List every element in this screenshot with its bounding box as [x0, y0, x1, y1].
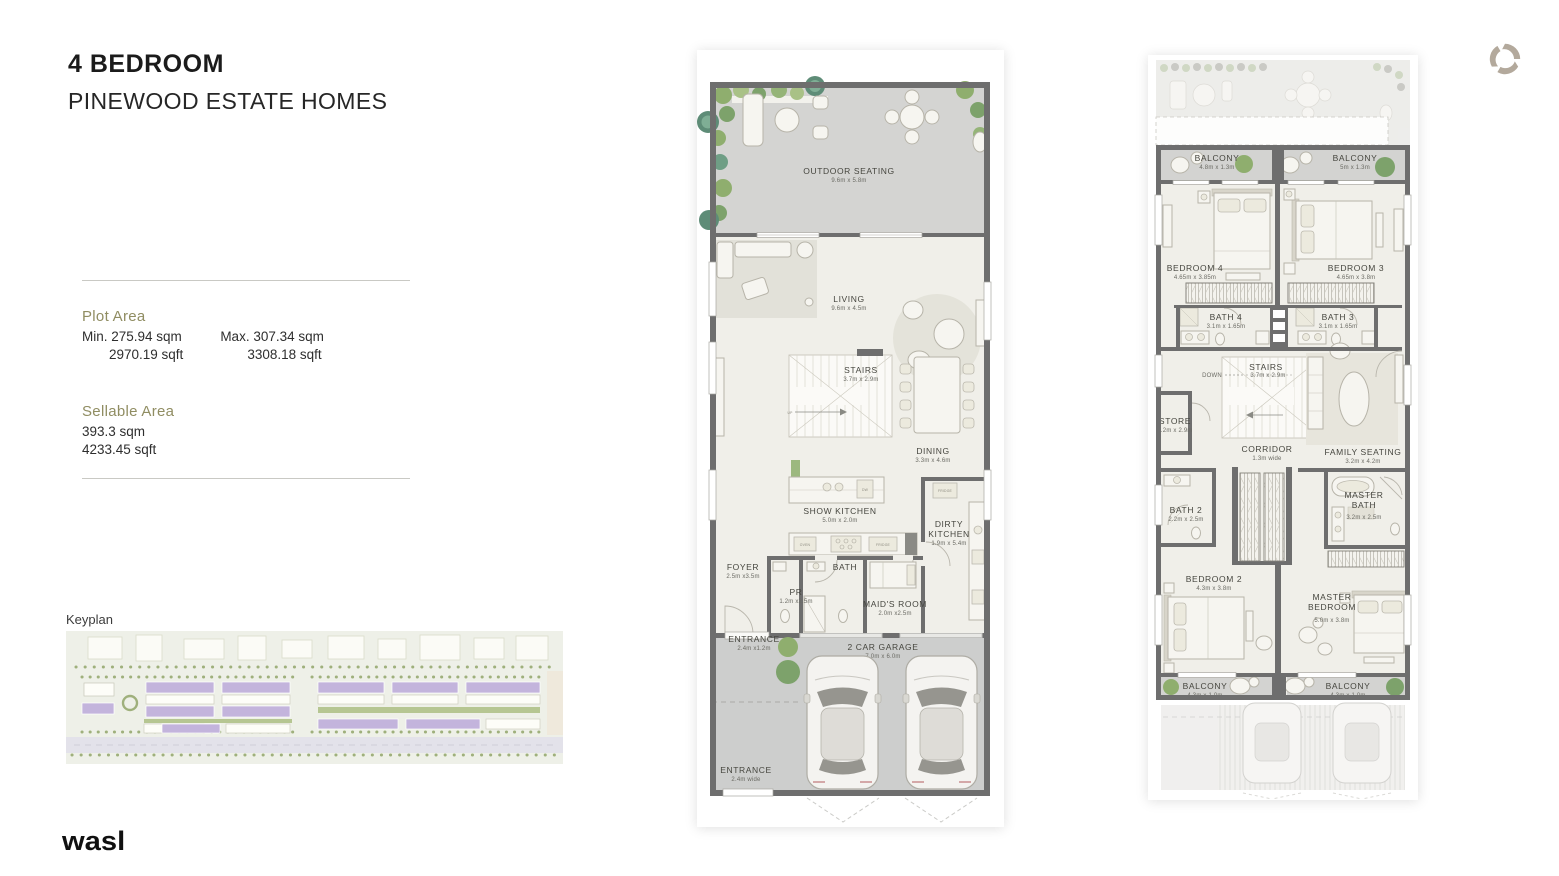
room-label-store: STORE 1.2m x 2.9m — [1157, 416, 1192, 434]
room-name: BATH 2 — [1170, 505, 1203, 515]
room-label-balcony-4: BALCONY 4.8m x 1.3m — [1195, 153, 1240, 171]
room-label-living: LIVING 9.6m x 4.5m — [831, 294, 866, 312]
car-icon — [903, 656, 980, 789]
plot-area-min: Min. 275.94 sqm 2970.19 sqft — [82, 328, 183, 364]
stairs-ground: UP — [787, 349, 892, 437]
room-dims: 2.4m x1.2m — [737, 646, 770, 652]
room-name: BALCONY — [1183, 681, 1228, 691]
room-name: MAID'S ROOM — [863, 599, 927, 609]
room-label-foyer: FOYER 2.5m x3.5m — [726, 562, 759, 580]
down-label: DOWN — [1202, 373, 1222, 379]
master-closet-strip — [1328, 551, 1404, 567]
ground-floor-plan: OUTDOOR SEATING 9.6m x 5.8m LIVING 9.6m … — [697, 50, 1004, 827]
room-name: SHOW KITCHEN — [803, 506, 876, 516]
room-name: BALCONY — [1195, 153, 1240, 163]
first-floor-plan-tile: BALCONY 4.8m x 1.3m BALCONY 5m x 1.3m BE… — [1148, 55, 1418, 800]
room-name: BEDROOM 3 — [1328, 263, 1384, 273]
brochure-page: 4 BEDROOM PINEWOOD ESTATE HOMES Plot Are… — [0, 0, 1559, 876]
divider-top — [82, 280, 410, 281]
closet-right — [1264, 473, 1284, 561]
room-dims: 3.2m x 2.5m — [1346, 515, 1381, 521]
developer-swirl-logo — [1486, 40, 1524, 78]
sellable-area-block: Sellable Area 393.3 sqm 4233.45 sqft — [82, 403, 174, 459]
plot-max-sqft: 3308.18 sqft — [220, 346, 324, 364]
room-name: BATH 3 — [1322, 312, 1355, 322]
room-dims: 1.3m wide — [1252, 456, 1282, 462]
page-title: 4 BEDROOM — [68, 50, 224, 79]
room-name: STORE — [1159, 416, 1191, 426]
room-dims: 2.0m x2.5m — [878, 611, 911, 617]
wardrobe-bedroom3 — [1288, 283, 1374, 303]
room-name: LIVING — [833, 294, 864, 304]
room-label-bedroom-4: BEDROOM 4 4.65m x 3.85m — [1167, 263, 1223, 281]
wasl-logo: wasl — [62, 826, 125, 857]
room-name: BEDROOM 4 — [1167, 263, 1223, 273]
ghost-roof-garden — [1156, 60, 1410, 145]
room-name: STAIRS — [844, 365, 878, 375]
room-dims: 4.65m x 3.8m — [1337, 275, 1376, 281]
plot-min-sqm: Min. 275.94 sqm — [82, 328, 183, 346]
room-dims: 1.2m x 2.9m — [1157, 428, 1192, 434]
room-dims: 3.2m x 4.2m — [1345, 459, 1380, 465]
room-dims: 1.2m x2.5m — [779, 599, 812, 605]
plot-min-sqft: 2970.19 sqft — [82, 346, 183, 364]
room-label-dining: DINING 3.3m x 4.6m — [915, 446, 950, 464]
dw-label: DW — [862, 488, 869, 492]
room-dims: 5.0m x 2.0m — [822, 518, 857, 524]
room-name: OUTDOOR SEATING — [803, 166, 895, 176]
room-name: BALCONY — [1326, 681, 1371, 691]
room-dims: 5m x 1.3m — [1340, 165, 1370, 171]
ground-floor-plan-tile: OUTDOOR SEATING 9.6m x 5.8m LIVING 9.6m … — [697, 50, 1004, 827]
room-name: BATH — [833, 562, 857, 572]
room-name: FOYER — [727, 562, 759, 572]
room-dims: 3.7m x 2.9m — [1250, 373, 1285, 379]
room-dims: 1.9m x 5.4m — [931, 541, 966, 547]
family-seating-furniture — [1306, 343, 1403, 445]
fridge-label-2: FRIDGE — [938, 489, 953, 493]
room-label-master-bedroom: MASTERBEDROOM 5.0m x 3.8m — [1308, 592, 1356, 624]
divider-bottom — [82, 478, 410, 479]
room-name: DINING — [916, 446, 949, 456]
room-dims: 2.5m x3.5m — [726, 574, 759, 580]
room-name: BALCONY — [1333, 153, 1378, 163]
room-dims: 3.3m x 4.6m — [915, 458, 950, 464]
room-dims: 9.6m x 4.5m — [831, 306, 866, 312]
maids-room-furniture — [870, 562, 916, 588]
up-label: UP — [787, 411, 793, 415]
room-name: 2 CAR GARAGE — [848, 642, 919, 652]
ghost-garage — [1161, 703, 1405, 799]
driveway-chevrons — [807, 798, 977, 822]
room-name: MASTERBEDROOM — [1308, 592, 1356, 612]
keyplan-heading: Keyplan — [66, 612, 113, 627]
room-name: STAIRS — [1249, 362, 1283, 372]
room-label-stairs: STAIRS 3.7m x 2.9m — [843, 365, 878, 383]
room-dims: 3.1m x 1.65m — [1319, 324, 1358, 330]
room-dims: 2.2m x 2.5m — [1168, 517, 1203, 523]
swirl-icon — [1486, 44, 1520, 78]
room-label-bath-2: BATH 2 2.2m x 2.5m — [1168, 505, 1203, 523]
plot-area-max: Max. 307.34 sqm 3308.18 sqft — [220, 328, 324, 364]
car-icon — [804, 656, 881, 789]
room-dims: 4.65m x 3.85m — [1174, 275, 1216, 281]
plot-area-heading: Plot Area — [82, 308, 324, 325]
room-name: CORRIDOR — [1241, 444, 1292, 454]
plot-max-sqm: Max. 307.34 sqm — [220, 328, 324, 346]
fridge-label: FRIDGE — [876, 543, 891, 547]
room-label-bath-4: BATH 4 3.1m x 1.65m — [1207, 312, 1246, 330]
room-dims: 3.1m x 1.65m — [1207, 324, 1246, 330]
room-name: BATH 4 — [1210, 312, 1243, 322]
sellable-area-heading: Sellable Area — [82, 403, 174, 420]
wardrobe-bedroom4 — [1186, 283, 1272, 303]
room-dims: 4.3m x 3.8m — [1196, 586, 1231, 592]
plot-area-block: Plot Area Min. 275.94 sqm 2970.19 sqft M… — [82, 308, 324, 364]
keyplan-map — [66, 631, 563, 764]
room-dims: 3.7m x 2.9m — [843, 377, 878, 383]
room-name: BEDROOM 2 — [1186, 574, 1242, 584]
closet-left — [1240, 473, 1260, 561]
sellable-sqft: 4233.45 sqft — [82, 441, 174, 459]
room-dims: 9.6m x 5.8m — [831, 178, 866, 184]
oven-label: OVEN — [800, 543, 811, 547]
room-label-bath: BATH — [833, 562, 857, 572]
room-dims: 4.8m x 1.3m — [1199, 165, 1234, 171]
room-dims: 5.0m x 3.8m — [1314, 618, 1349, 624]
room-name: ENTRANCE — [728, 634, 780, 644]
room-name: ENTRANCE — [720, 765, 772, 775]
page-subtitle: PINEWOOD ESTATE HOMES — [68, 88, 387, 115]
room-name: PR — [789, 587, 802, 597]
room-dims: 2.4m wide — [731, 777, 761, 783]
room-name: FAMILY SEATING — [1325, 447, 1402, 457]
sellable-sqm: 393.3 sqm — [82, 423, 174, 441]
first-floor-plan: BALCONY 4.8m x 1.3m BALCONY 5m x 1.3m BE… — [1148, 55, 1418, 800]
room-label-bath-3: BATH 3 3.1m x 1.65m — [1319, 312, 1358, 330]
